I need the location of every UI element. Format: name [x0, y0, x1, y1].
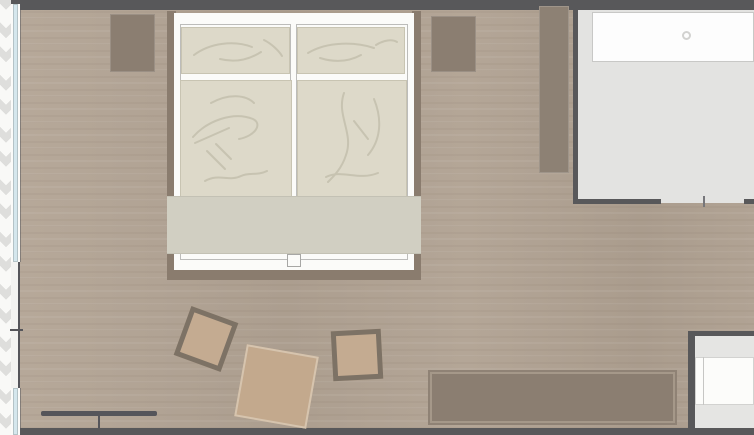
pillow-left [181, 27, 290, 74]
wall-door-left-segment [573, 199, 661, 204]
window-wall-pier [11, 262, 20, 388]
basin-drain-icon [682, 31, 691, 40]
window-pane-bottom [11, 388, 20, 435]
double-bed[interactable] [167, 10, 421, 280]
pillow-right [297, 27, 405, 74]
entry-threshold-top [695, 336, 754, 357]
sideboard[interactable] [428, 370, 677, 425]
entry-wall-left [688, 331, 695, 428]
pillow-crease-lines [298, 28, 404, 73]
wall-top [11, 0, 754, 10]
pier-joint-tick [10, 329, 23, 331]
wall-bottom [18, 428, 754, 435]
floor-cushion-center[interactable] [234, 344, 319, 429]
wall-partition [573, 10, 578, 203]
wall-door-right-segment [744, 199, 754, 204]
duvet-crease-lines [181, 81, 291, 196]
sliding-door-stem [98, 416, 100, 428]
window-pane-top [11, 4, 20, 262]
duvet-left [180, 80, 292, 197]
nightstand-right[interactable] [431, 16, 476, 72]
curtain-zigzag [0, 0, 11, 435]
door-jamb-tick [703, 196, 705, 207]
entry-door-edge-line [703, 357, 704, 405]
entry-wall-top [688, 331, 754, 336]
floor-plan-canvas [0, 0, 754, 435]
bed-rail-foot [167, 270, 421, 280]
bed-runner-blanket [167, 196, 421, 254]
pillow-crease-lines [182, 28, 289, 73]
nightstand-left[interactable] [110, 14, 155, 72]
floor-cushion-right[interactable] [331, 329, 384, 382]
duvet-right [297, 80, 407, 197]
wardrobe[interactable] [539, 6, 569, 173]
vanity-counter[interactable] [592, 12, 754, 62]
duvet-crease-lines [298, 81, 406, 196]
entry-threshold-bottom [695, 405, 754, 428]
mattress-split-notch [287, 254, 301, 267]
